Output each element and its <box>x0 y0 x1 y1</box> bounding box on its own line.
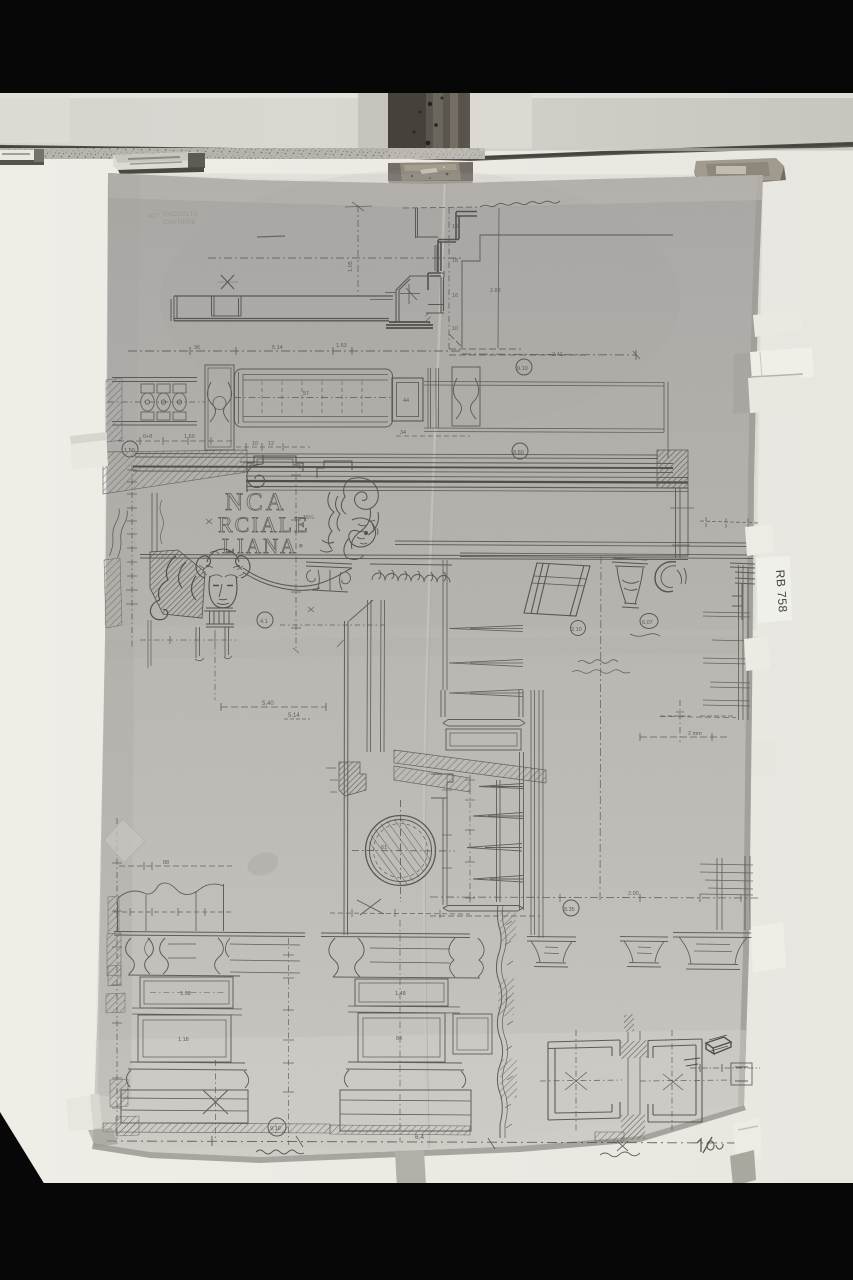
svg-text:RACCOLTA: RACCOLTA <box>163 211 198 218</box>
svg-text:10: 10 <box>452 326 458 332</box>
svg-text:1.59: 1.59 <box>184 434 195 440</box>
svg-text:427: 427 <box>148 213 159 220</box>
svg-text:9,10: 9,10 <box>270 1126 281 1132</box>
svg-text:16: 16 <box>452 293 458 299</box>
svg-text:2.00: 2.00 <box>628 891 639 897</box>
svg-text:36: 36 <box>194 345 200 351</box>
svg-text:CANTIERE: CANTIERE <box>163 219 197 226</box>
svg-text:2.83: 2.83 <box>490 288 501 294</box>
svg-text:1.05: 1.05 <box>348 261 354 272</box>
svg-text:8.35: 8.35 <box>564 907 575 913</box>
svg-text:57: 57 <box>303 391 309 397</box>
svg-text:1,48: 1,48 <box>395 991 406 997</box>
svg-text:RB 758: RB 758 <box>773 569 790 613</box>
svg-text:1.18: 1.18 <box>178 1037 189 1043</box>
svg-text:10: 10 <box>252 441 258 447</box>
svg-text:2.10: 2.10 <box>571 627 582 633</box>
svg-text:12: 12 <box>268 441 274 447</box>
svg-text:8.60: 8.60 <box>513 450 524 456</box>
svg-text:5.14: 5.14 <box>272 345 283 351</box>
svg-text:34: 34 <box>400 430 406 436</box>
svg-text:88: 88 <box>163 860 169 866</box>
svg-text:15¼: 15¼ <box>303 515 314 521</box>
svg-text:9.10: 9.10 <box>517 366 528 372</box>
svg-text:61: 61 <box>381 845 387 851</box>
svg-text:1.08: 1.08 <box>180 991 191 997</box>
svg-text:6,4: 6,4 <box>415 1134 424 1141</box>
svg-text:1.63: 1.63 <box>336 343 347 349</box>
svg-text:4.1: 4.1 <box>260 619 268 625</box>
svg-text:2 mm: 2 mm <box>688 731 702 737</box>
svg-text:6+8: 6+8 <box>143 434 152 440</box>
svg-text:16: 16 <box>452 224 458 230</box>
svg-text:6.07: 6.07 <box>642 620 653 626</box>
svg-text:44: 44 <box>403 398 409 404</box>
svg-text:5,40: 5,40 <box>262 701 274 707</box>
svg-text:18: 18 <box>452 258 458 264</box>
svg-text:84: 84 <box>396 1036 402 1042</box>
svg-text:5.14: 5.14 <box>288 713 300 719</box>
